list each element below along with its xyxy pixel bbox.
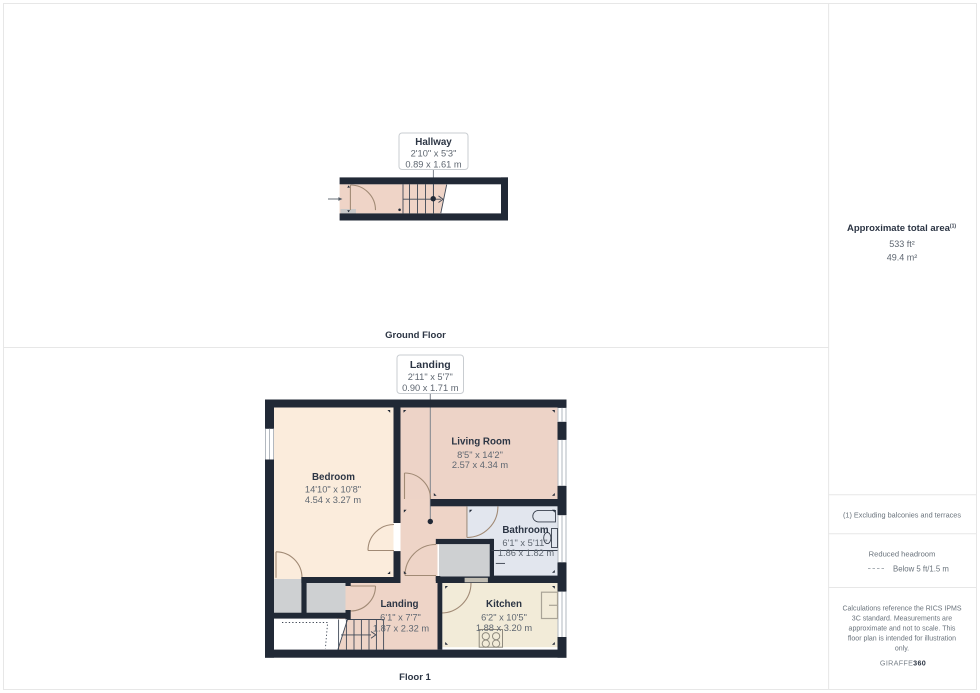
svg-text:0.89 x 1.61 m: 0.89 x 1.61 m (405, 160, 462, 170)
svg-text:1.86 x 1.82 m: 1.86 x 1.82 m (498, 548, 555, 558)
svg-text:2'10" x 5'3": 2'10" x 5'3" (411, 149, 457, 159)
svg-text:6'1" x 7'7": 6'1" x 7'7" (380, 613, 421, 623)
svg-text:Bathroom: Bathroom (502, 525, 549, 536)
svg-text:533 ft²: 533 ft² (889, 239, 915, 249)
svg-text:(1) Excluding balconies and te: (1) Excluding balconies and terraces (843, 511, 961, 520)
svg-text:Kitchen: Kitchen (486, 599, 522, 610)
svg-text:6'2" x 10'5": 6'2" x 10'5" (481, 613, 527, 623)
svg-text:2.57 x 4.34 m: 2.57 x 4.34 m (452, 460, 509, 470)
svg-text:0.90 x 1.71 m: 0.90 x 1.71 m (402, 383, 459, 393)
svg-text:4.54 x 3.27 m: 4.54 x 3.27 m (305, 495, 362, 505)
svg-text:Bedroom: Bedroom (312, 472, 355, 483)
svg-text:only.: only. (895, 646, 909, 653)
svg-text:Ground Floor: Ground Floor (385, 330, 446, 341)
svg-text:approximate and not to scale.: approximate and not to scale. This (849, 626, 956, 633)
svg-text:Below 5 ft/1.5 m: Below 5 ft/1.5 m (893, 565, 949, 574)
svg-text:GIRAFFE360: GIRAFFE360 (880, 659, 926, 668)
svg-text:14'10" x 10'8": 14'10" x 10'8" (305, 485, 361, 495)
svg-text:Hallway: Hallway (415, 137, 452, 148)
svg-text:Calculations reference the RIC: Calculations reference the RICS IPMS (842, 606, 961, 613)
svg-text:3C standard. Measurements are: 3C standard. Measurements are (852, 616, 952, 623)
svg-text:8'5" x 14'2": 8'5" x 14'2" (457, 450, 503, 460)
svg-text:Living Room: Living Room (451, 437, 511, 448)
svg-text:49.4 m²: 49.4 m² (887, 253, 918, 263)
svg-text:Approximate total area(1): Approximate total area(1) (847, 223, 956, 234)
svg-text:1.87 x 2.32 m: 1.87 x 2.32 m (373, 624, 430, 634)
svg-text:2'11" x 5'7": 2'11" x 5'7" (408, 372, 453, 382)
svg-text:floor plan is intended for ill: floor plan is intended for illustration (848, 636, 956, 643)
svg-text:Landing: Landing (410, 359, 451, 371)
svg-text:Landing: Landing (380, 599, 418, 610)
svg-text:Reduced headroom: Reduced headroom (869, 550, 936, 559)
svg-text:Floor 1: Floor 1 (399, 672, 431, 683)
svg-text:6'1" x 5'11": 6'1" x 5'11" (502, 538, 547, 548)
svg-text:1.88 x 3.20 m: 1.88 x 3.20 m (476, 623, 533, 633)
